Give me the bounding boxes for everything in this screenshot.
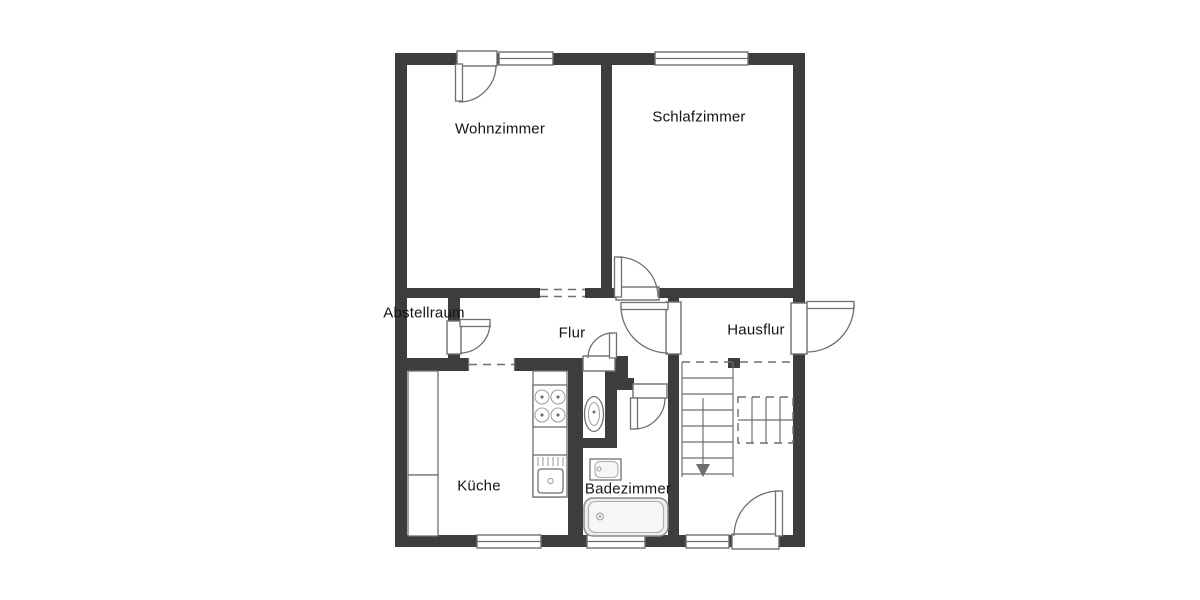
wall-kueche-badezimmer bbox=[568, 358, 583, 536]
wall-wohnzimmer-schlafzimmer bbox=[601, 60, 612, 298]
room-label-schlafzimmer: Schlafzimmer bbox=[652, 109, 745, 126]
room-label-badezimmer: Badezimmer bbox=[585, 481, 671, 498]
door-wc bbox=[583, 333, 617, 371]
door-flur-hausflur bbox=[621, 302, 681, 354]
wall-badezimmer-top-stub bbox=[614, 378, 634, 390]
stair-upper-flight-dashed bbox=[738, 397, 793, 443]
room-label-abstellraum: Abstellraum bbox=[383, 305, 464, 322]
window-schlafzimmer bbox=[655, 52, 748, 65]
staircase bbox=[682, 362, 793, 477]
floor-plan-drawing bbox=[0, 0, 1200, 600]
closet-icon bbox=[408, 371, 438, 536]
room-label-kueche: Küche bbox=[457, 478, 501, 495]
toilet-icon bbox=[585, 397, 604, 432]
washbasin-icon bbox=[590, 459, 621, 480]
floor-plan-page: Wohnzimmer Schlafzimmer Abstellraum Flur… bbox=[0, 0, 1200, 600]
door-badezimmer bbox=[631, 384, 668, 429]
room-label-hausflur: Hausflur bbox=[727, 322, 784, 339]
stove-icon bbox=[533, 385, 567, 427]
wall-outer-left bbox=[395, 53, 407, 547]
window-kueche bbox=[477, 535, 541, 548]
wall-stair-stub bbox=[728, 358, 740, 368]
door-schlafzimmer bbox=[615, 257, 660, 300]
door-abstellraum bbox=[447, 320, 490, 355]
fixtures bbox=[408, 371, 668, 536]
door-wohnzimmer-balcony bbox=[456, 51, 498, 102]
window-wohnzimmer bbox=[499, 52, 553, 65]
room-label-flur: Flur bbox=[559, 325, 586, 342]
wall-kueche-top-left bbox=[407, 358, 468, 371]
passage-flur-kueche bbox=[468, 357, 515, 372]
passage-wohnzimmer-flur bbox=[540, 287, 585, 299]
wall-outer-right bbox=[793, 53, 805, 547]
wall-mid-left bbox=[407, 288, 540, 298]
bathtub-icon bbox=[584, 498, 668, 536]
window-hausflur bbox=[686, 535, 729, 548]
room-label-wohnzimmer: Wohnzimmer bbox=[455, 121, 545, 138]
wall-mid-center bbox=[585, 288, 617, 298]
window-badezimmer bbox=[587, 535, 645, 548]
wall-kueche-top-right bbox=[515, 358, 570, 371]
kitchen-sink-icon bbox=[533, 455, 567, 497]
door-hausflur-side-exit bbox=[791, 302, 854, 355]
door-main-entrance bbox=[732, 491, 783, 549]
wall-wc-niche-bottom bbox=[583, 438, 617, 448]
